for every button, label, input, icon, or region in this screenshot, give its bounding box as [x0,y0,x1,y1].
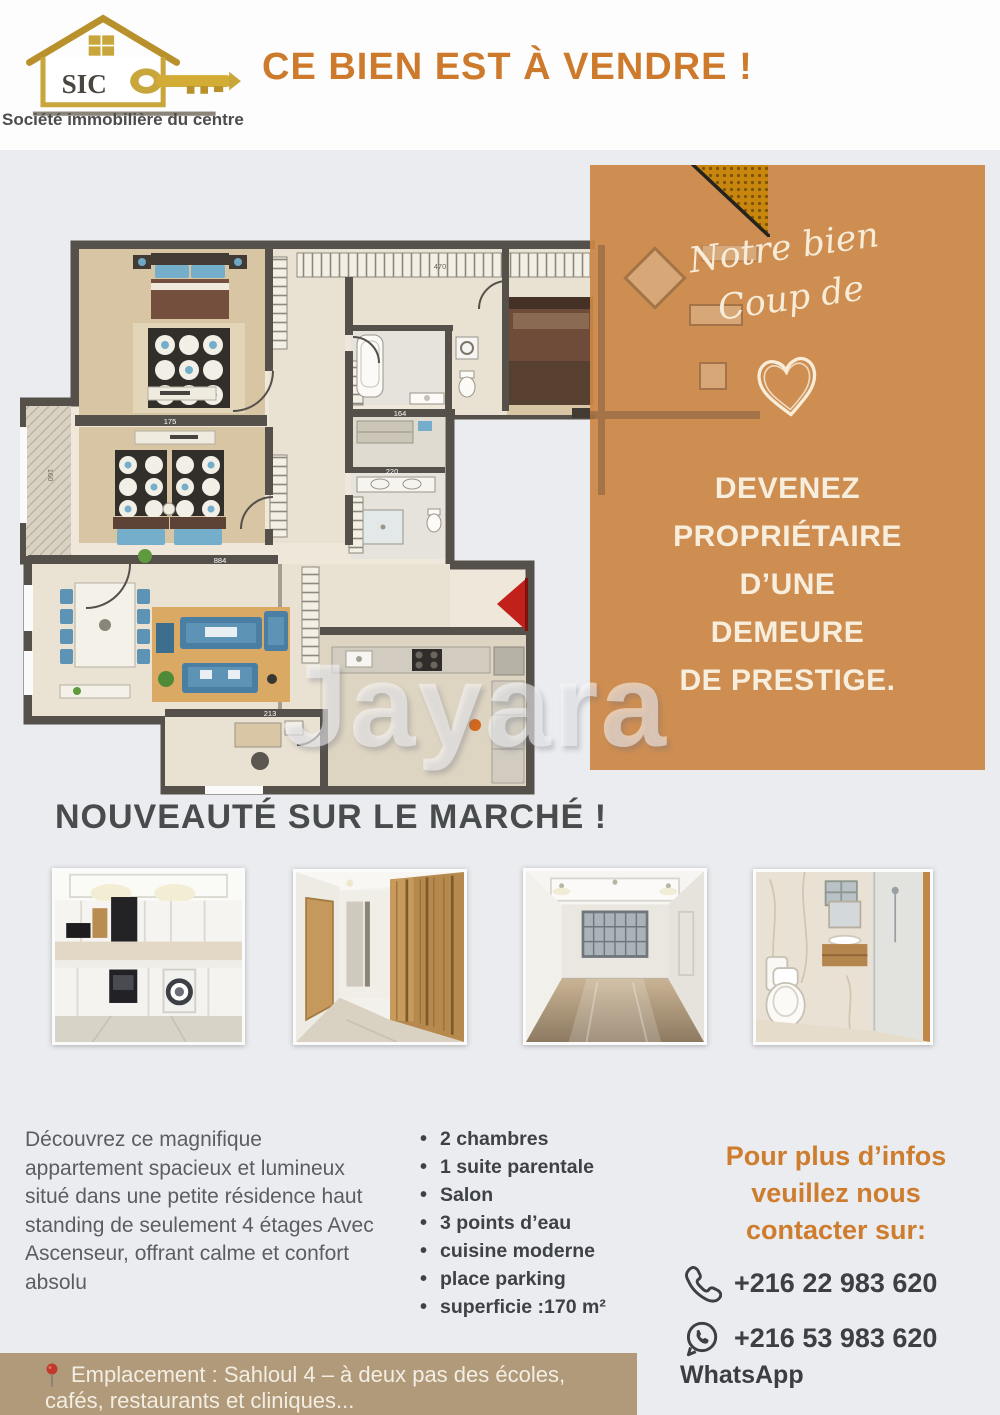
company-name: Société immobilière du centre [2,110,302,130]
feature-text: 3 points d’eau [440,1212,571,1235]
pin-icon [44,1363,60,1389]
feature-text: 1 suite parentale [440,1156,594,1179]
whatsapp-label: WhatsApp [680,1361,992,1390]
location-text-1: Emplacement : Sahloul 4 – à deux pas des… [71,1362,565,1387]
headline-line: PROPRIÉTAIRE [590,513,985,561]
red-arrow-icon [497,577,529,633]
whatsapp-icon [680,1317,722,1359]
panel-headline: DEVENEZ PROPRIÉTAIRE D’UNE DEMEURE DE PR… [590,465,985,705]
feature-item: •2 chambres [420,1128,690,1156]
feature-item: •1 suite parentale [420,1156,690,1184]
bullet-dot: • [420,1240,427,1263]
contact-block: Pour plus d’infos veuillez nous contacte… [680,1138,992,1390]
whatsapp-number: +216 53 983 620 [734,1323,937,1354]
bathroom-photo-graphic [756,872,930,1042]
dim-label: 213 [264,709,277,718]
contact-heading: Pour plus d’infos veuillez nous contacte… [680,1138,992,1249]
feature-list: •2 chambres •1 suite parentale •Salon •3… [420,1128,690,1324]
bullet-dot: • [420,1156,427,1179]
phone-number: +216 22 983 620 [734,1268,937,1299]
dim-label: 164 [394,409,407,418]
headline-line: D’UNE [590,561,985,609]
feature-item: •cuisine moderne [420,1240,690,1268]
dim-label: 175 [164,417,177,426]
contact-heading-line: Pour plus d’infos [680,1138,992,1175]
bullet-dot: • [420,1296,427,1319]
phone-row: +216 22 983 620 [680,1262,992,1304]
bullet-dot: • [420,1268,427,1291]
phone-icon [680,1262,722,1304]
feature-item: •place parking [420,1268,690,1296]
header: SIC Société immobilière du centre CE BIE… [0,0,1000,150]
feature-text: place parking [440,1268,566,1291]
corridor-photo-graphic [296,872,464,1042]
location-line-1: Emplacement : Sahloul 4 – à deux pas des… [45,1362,623,1388]
flyer-page: SIC Société immobilière du centre CE BIE… [0,0,1000,1415]
dim-label: 884 [214,556,227,565]
promo-panel: Notre bien Coup de DEVENEZ PROPRIÉTAIRE … [590,165,985,770]
headline-line: DEVENEZ [590,465,985,513]
feature-item: •superficie :170 m² [420,1296,690,1324]
feature-text: superficie :170 m² [440,1296,606,1319]
floor-plan: 175 470 884 220 164 213 160 [20,165,595,795]
feature-item: •Salon [420,1184,690,1212]
whatsapp-row: +216 53 983 620 [680,1317,992,1359]
feature-text: 2 chambres [440,1128,548,1151]
kitchen-photo-graphic [55,871,242,1042]
page-title: CE BIEN EST À VENDRE ! [262,46,942,89]
location-bar: Emplacement : Sahloul 4 – à deux pas des… [0,1353,637,1415]
headline-line: DEMEURE [590,609,985,657]
photo-kitchen [52,868,245,1045]
contact-heading-line: contacter sur: [680,1212,992,1249]
feature-item: •3 points d’eau [420,1212,690,1240]
bullet-dot: • [420,1184,427,1207]
photo-salon [523,868,707,1045]
sic-house-key-logo: SIC [6,10,256,120]
location-text-2: cafés, restaurants et cliniques... [45,1388,623,1414]
bullet-dot: • [420,1212,427,1235]
contact-heading-line: veuillez nous [680,1175,992,1212]
photo-corridor [293,869,467,1045]
market-headline: NOUVEAUTÉ SUR LE MARCHÉ ! [55,798,755,837]
dim-label: 160 [46,469,55,482]
property-description: Découvrez ce magnifique appartement spac… [25,1126,377,1297]
heart-icon [748,347,827,426]
dim-label: 470 [434,262,447,271]
dim-label: 220 [386,467,399,476]
svg-text:SIC: SIC [62,69,107,99]
headline-line: DE PRESTIGE. [590,657,985,705]
bullet-dot: • [420,1128,427,1151]
feature-text: cuisine moderne [440,1240,595,1263]
feature-text: Salon [440,1184,493,1207]
panel-script-text: Notre bien Coup de [590,196,985,351]
photo-bathroom [753,869,933,1045]
salon-photo-graphic [526,871,704,1042]
